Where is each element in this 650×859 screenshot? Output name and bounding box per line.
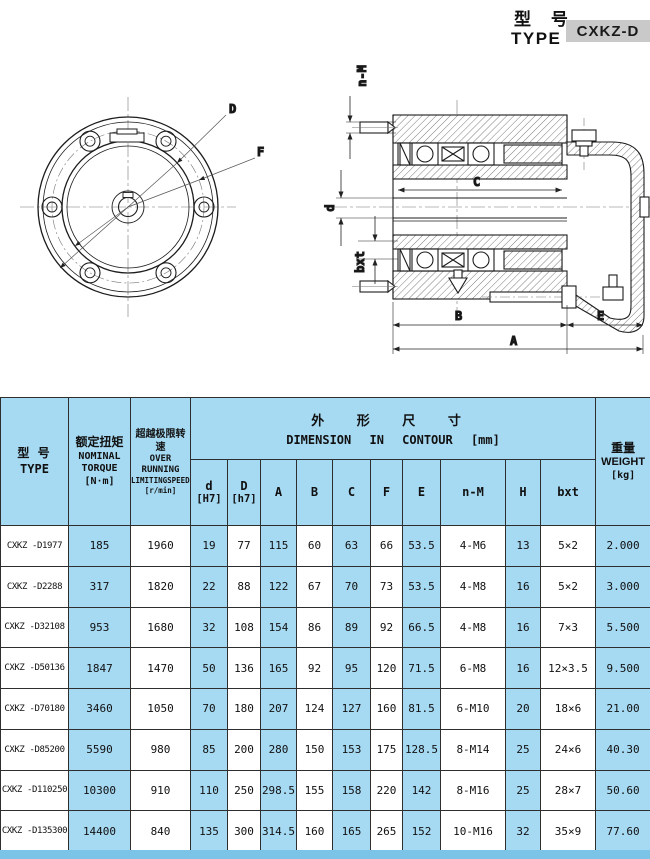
dim-col-header: B: [297, 460, 333, 526]
dim-col-header: D[h7]: [228, 460, 261, 526]
table-body: CXKZ -D19771851960197711560636653.54-M61…: [1, 526, 650, 852]
technical-drawings: D F: [0, 50, 650, 395]
dim-col-header: F: [371, 460, 403, 526]
value-cell: 70: [333, 566, 371, 607]
value-cell: 10300: [69, 770, 131, 811]
value-cell: 95: [333, 648, 371, 689]
value-cell: 142: [403, 770, 441, 811]
page-title-en: TYPE: [511, 29, 561, 49]
value-cell: 7×3: [541, 607, 596, 648]
value-cell: 5.500: [596, 607, 650, 648]
value-cell: 152: [403, 811, 441, 852]
value-cell: 165: [261, 648, 297, 689]
upper-bearings: [398, 143, 562, 165]
table-row: CXKZ -D22883171820228812267707353.54-M81…: [1, 566, 650, 607]
table-row: CXKZ -D13530014400840135300314.516016526…: [1, 811, 650, 852]
model-cell: CXKZ -D135300: [1, 811, 69, 852]
value-cell: 3.000: [596, 566, 650, 607]
value-cell: 4-M8: [441, 607, 506, 648]
value-cell: 16: [506, 607, 541, 648]
value-cell: 66.5: [403, 607, 441, 648]
value-cell: 8-M14: [441, 729, 506, 770]
value-cell: 13: [506, 526, 541, 567]
value-cell: 77: [228, 526, 261, 567]
datasheet-page: { "header": { "title_cn": "型 号", "title_…: [0, 0, 650, 859]
value-cell: 21.00: [596, 689, 650, 730]
value-cell: 92: [371, 607, 403, 648]
value-cell: 12×3.5: [541, 648, 596, 689]
model-cell: CXKZ -D2288: [1, 566, 69, 607]
value-cell: 3460: [69, 689, 131, 730]
value-cell: 910: [131, 770, 191, 811]
value-cell: 165: [333, 811, 371, 852]
value-cell: 6-M10: [441, 689, 506, 730]
value-cell: 53.5: [403, 566, 441, 607]
lower-bearings: [398, 249, 562, 271]
section-label-E: E: [597, 309, 604, 323]
value-cell: 1847: [69, 648, 131, 689]
value-cell: 158: [333, 770, 371, 811]
value-cell: 60: [297, 526, 333, 567]
value-cell: 70: [191, 689, 228, 730]
table-row: CXKZ -D70180346010507018020712412716081.…: [1, 689, 650, 730]
value-cell: 185: [69, 526, 131, 567]
value-cell: 24×6: [541, 729, 596, 770]
value-cell: 20: [506, 689, 541, 730]
value-cell: 89: [333, 607, 371, 648]
value-cell: 5590: [69, 729, 131, 770]
table-row: CXKZ -D19771851960197711560636653.54-M61…: [1, 526, 650, 567]
value-cell: 207: [261, 689, 297, 730]
section-label-d: d: [323, 204, 337, 211]
value-cell: 5×2: [541, 566, 596, 607]
value-cell: 127: [333, 689, 371, 730]
dim-col-header: H: [506, 460, 541, 526]
dim-col-header: bxt: [541, 460, 596, 526]
value-cell: 32: [506, 811, 541, 852]
value-cell: 4-M6: [441, 526, 506, 567]
value-cell: 88: [228, 566, 261, 607]
model-code-box: CXKZ-D: [566, 20, 650, 42]
value-cell: 53.5: [403, 526, 441, 567]
value-cell: 71.5: [403, 648, 441, 689]
value-cell: 122: [261, 566, 297, 607]
front-label-D: D: [229, 102, 236, 116]
value-cell: 77.60: [596, 811, 650, 852]
value-cell: 120: [371, 648, 403, 689]
col-header-torque: 额定扭矩 NOMINAL TORQUE [N·m]: [69, 398, 131, 526]
col-header-speed: 超越极限转速 OVER RUNNING LIMITINGSPEEDS [r/mi…: [131, 398, 191, 526]
dim-col-header: n-M: [441, 460, 506, 526]
value-cell: 314.5: [261, 811, 297, 852]
table-row: CXKZ -D3210895316803210815486899266.54-M…: [1, 607, 650, 648]
dim-col-header: E: [403, 460, 441, 526]
section-view-drawing: n-M d bxt C B E A: [323, 65, 650, 354]
value-cell: 180: [228, 689, 261, 730]
value-cell: 317: [69, 566, 131, 607]
table-row: CXKZ -D85200559098085200280150153175128.…: [1, 729, 650, 770]
section-label-B: B: [455, 309, 462, 323]
value-cell: 32: [191, 607, 228, 648]
value-cell: 150: [297, 729, 333, 770]
value-cell: 115: [261, 526, 297, 567]
front-label-F: F: [257, 145, 264, 159]
value-cell: 108: [228, 607, 261, 648]
value-cell: 160: [297, 811, 333, 852]
table-row: CXKZ -D11025010300910110250298.515515822…: [1, 770, 650, 811]
value-cell: 81.5: [403, 689, 441, 730]
value-cell: 6-M8: [441, 648, 506, 689]
value-cell: 128.5: [403, 729, 441, 770]
value-cell: 153: [333, 729, 371, 770]
value-cell: 1960: [131, 526, 191, 567]
value-cell: 28×7: [541, 770, 596, 811]
table-bottom-bar: [0, 850, 650, 859]
value-cell: 73: [371, 566, 403, 607]
value-cell: 9.500: [596, 648, 650, 689]
value-cell: 40.30: [596, 729, 650, 770]
value-cell: 10-M16: [441, 811, 506, 852]
value-cell: 2.000: [596, 526, 650, 567]
value-cell: 1050: [131, 689, 191, 730]
value-cell: 19: [191, 526, 228, 567]
col-header-type: 型 号 TYPE: [1, 398, 69, 526]
dim-col-header: A: [261, 460, 297, 526]
value-cell: 220: [371, 770, 403, 811]
value-cell: 16: [506, 648, 541, 689]
value-cell: 265: [371, 811, 403, 852]
value-cell: 136: [228, 648, 261, 689]
value-cell: 953: [69, 607, 131, 648]
model-cell: CXKZ -D1977: [1, 526, 69, 567]
model-cell: CXKZ -D32108: [1, 607, 69, 648]
bell-housing: [567, 142, 644, 332]
value-cell: 980: [131, 729, 191, 770]
value-cell: 4-M8: [441, 566, 506, 607]
value-cell: 1680: [131, 607, 191, 648]
value-cell: 160: [371, 689, 403, 730]
dim-col-header: d[H7]: [191, 460, 228, 526]
value-cell: 1470: [131, 648, 191, 689]
value-cell: 135: [191, 811, 228, 852]
value-cell: 154: [261, 607, 297, 648]
value-cell: 250: [228, 770, 261, 811]
model-cell: CXKZ -D85200: [1, 729, 69, 770]
value-cell: 92: [297, 648, 333, 689]
value-cell: 63: [333, 526, 371, 567]
section-label-nM: n-M: [355, 65, 369, 87]
value-cell: 25: [506, 729, 541, 770]
spec-table: 型 号 TYPE 额定扭矩 NOMINAL TORQUE [N·m] 超越极限转…: [0, 397, 650, 852]
value-cell: 16: [506, 566, 541, 607]
value-cell: 85: [191, 729, 228, 770]
value-cell: 67: [297, 566, 333, 607]
value-cell: 155: [297, 770, 333, 811]
front-view-drawing: D F: [20, 97, 264, 317]
col-header-dimension: 外 形 尺 寸 DIMENSION IN CONTOUR [mm]: [191, 398, 596, 460]
section-label-A: A: [510, 334, 518, 348]
header-row-main: 型 号 TYPE 额定扭矩 NOMINAL TORQUE [N·m] 超越极限转…: [1, 398, 650, 460]
value-cell: 50.60: [596, 770, 650, 811]
value-cell: 175: [371, 729, 403, 770]
value-cell: 840: [131, 811, 191, 852]
value-cell: 22: [191, 566, 228, 607]
col-header-weight: 重量 WEIGHT [kg]: [596, 398, 650, 526]
model-cell: CXKZ -D70180: [1, 689, 69, 730]
dim-col-header: C: [333, 460, 371, 526]
value-cell: 298.5: [261, 770, 297, 811]
value-cell: 1820: [131, 566, 191, 607]
model-cell: CXKZ -D50136: [1, 648, 69, 689]
value-cell: 86: [297, 607, 333, 648]
value-cell: 300: [228, 811, 261, 852]
value-cell: 200: [228, 729, 261, 770]
value-cell: 280: [261, 729, 297, 770]
value-cell: 66: [371, 526, 403, 567]
value-cell: 50: [191, 648, 228, 689]
value-cell: 124: [297, 689, 333, 730]
model-cell: CXKZ -D110250: [1, 770, 69, 811]
value-cell: 110: [191, 770, 228, 811]
value-cell: 8-M16: [441, 770, 506, 811]
value-cell: 18×6: [541, 689, 596, 730]
value-cell: 25: [506, 770, 541, 811]
section-label-C: C: [473, 175, 480, 189]
section-label-bxt: bxt: [353, 251, 367, 273]
value-cell: 35×9: [541, 811, 596, 852]
table-row: CXKZ -D501361847147050136165929512071.56…: [1, 648, 650, 689]
value-cell: 5×2: [541, 526, 596, 567]
value-cell: 14400: [69, 811, 131, 852]
